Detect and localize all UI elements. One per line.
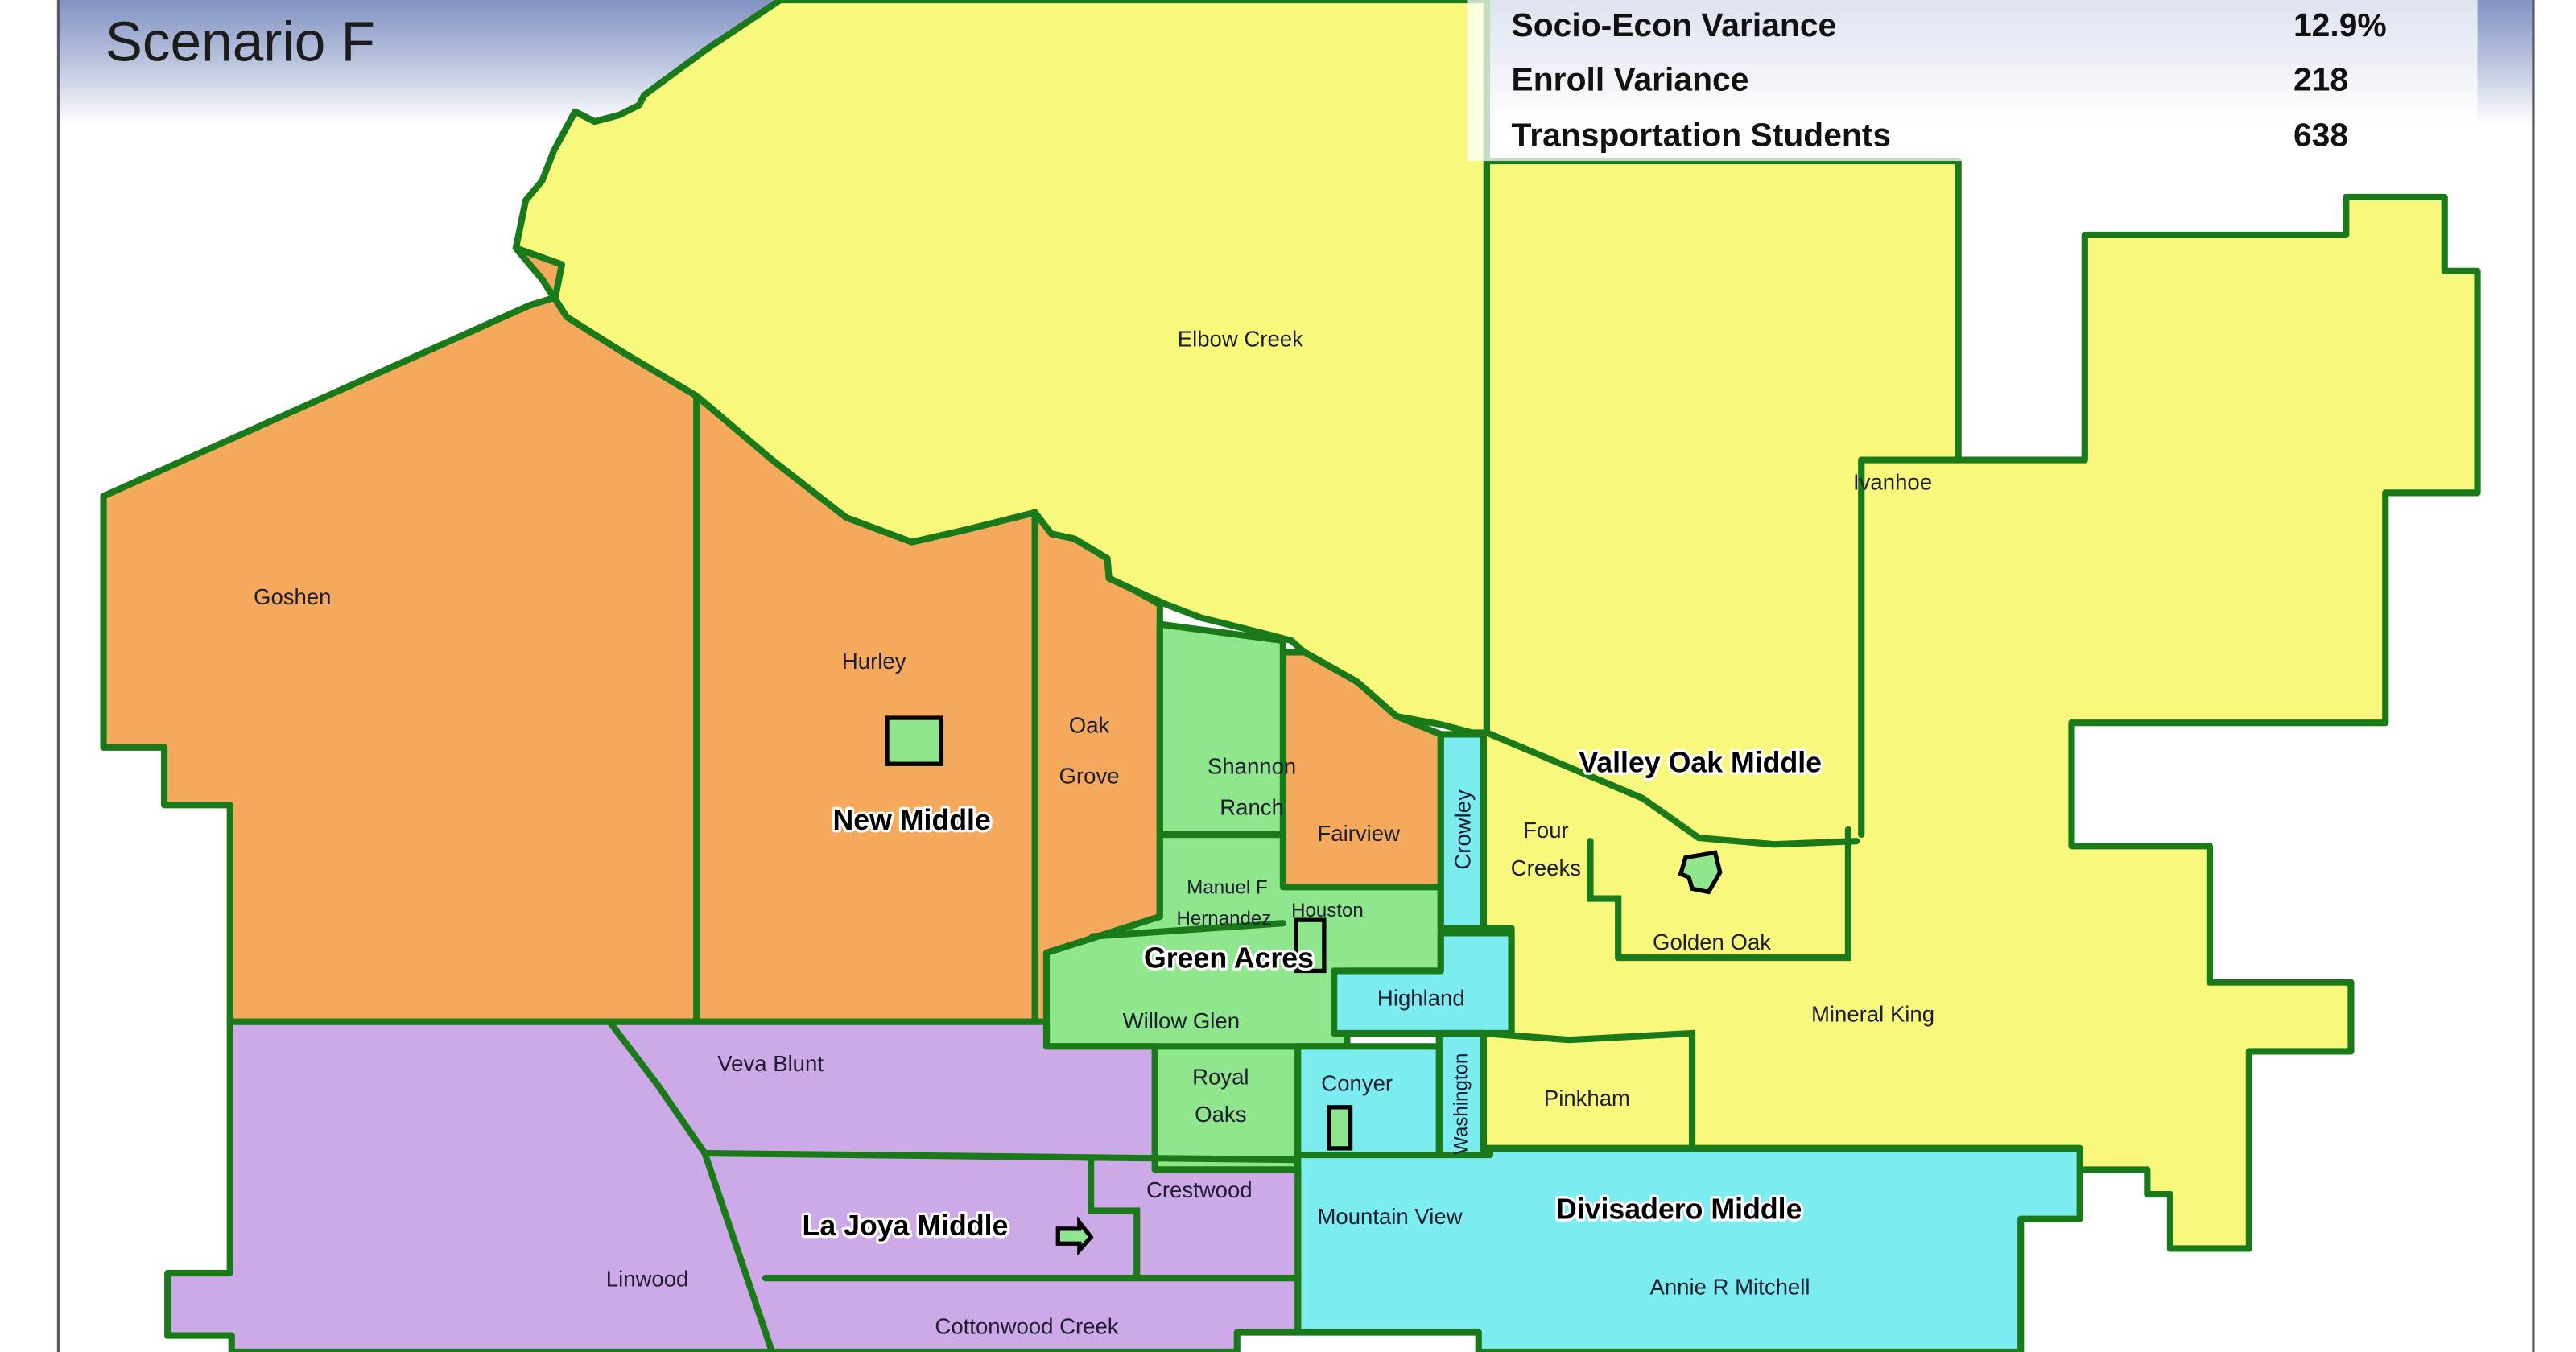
- area-label-hernandez-1: Manuel F: [1187, 876, 1267, 898]
- area-label-hurley: Hurley: [842, 649, 906, 674]
- area-label-elbow-creek: Elbow Creek: [1178, 327, 1303, 352]
- area-label-linwood: Linwood: [606, 1266, 689, 1291]
- stat-value-transportation-students: 638: [2293, 117, 2348, 154]
- area-label-veva-blunt: Veva Blunt: [717, 1051, 824, 1076]
- area-label-shannon-ranch-1: Shannon: [1207, 753, 1296, 778]
- stat-value-socio-econ-variance: 12.9%: [2293, 6, 2387, 43]
- zone-label-divisadero-middle: Divisadero Middle: [1556, 1193, 1802, 1226]
- area-label-four-creeks-1: Four: [1523, 818, 1569, 843]
- area-label-royal-oaks-1: Royal: [1192, 1064, 1249, 1089]
- area-divisadero-polygon: [1298, 1148, 2079, 1352]
- area-label-conyer: Conyer: [1321, 1070, 1393, 1095]
- new-middle-school-site-icon: [887, 718, 941, 764]
- stat-label-socio-econ-variance: Socio-Econ Variance: [1512, 6, 1837, 43]
- area-label-houston: Houston: [1291, 900, 1364, 921]
- area-label-oak-grove-1: Oak: [1069, 712, 1110, 737]
- scenario-map-page: Goshen Hurley Elbow Creek Ivanhoe Oak Gr…: [0, 0, 2576, 1352]
- zone-label-la-joya-middle: La Joya Middle: [803, 1210, 1009, 1242]
- area-label-willow-glen: Willow Glen: [1123, 1008, 1240, 1033]
- area-label-ivanhoe: Ivanhoe: [1853, 469, 1932, 494]
- area-label-fairview: Fairview: [1317, 821, 1400, 846]
- district-map: Goshen Hurley Elbow Creek Ivanhoe Oak Gr…: [0, 0, 2576, 1352]
- area-label-mountain-view: Mountain View: [1317, 1204, 1462, 1229]
- area-label-highland: Highland: [1377, 985, 1465, 1010]
- page-title: Scenario F: [105, 10, 375, 73]
- area-label-goshen: Goshen: [254, 584, 331, 609]
- area-label-oak-grove-2: Grove: [1059, 764, 1120, 789]
- area-label-mineral-king: Mineral King: [1811, 1002, 1934, 1027]
- conyer-school-icon: [1329, 1107, 1351, 1148]
- area-label-cottonwood-creek: Cottonwood Creek: [935, 1314, 1118, 1339]
- area-label-washington: Washington: [1450, 1053, 1472, 1155]
- area-label-shannon-ranch-2: Ranch: [1220, 794, 1284, 819]
- area-label-hernandez-2: Hernandez: [1177, 908, 1272, 929]
- stat-value-enroll-variance: 218: [2293, 60, 2348, 97]
- area-label-annie-r-mitchell: Annie R Mitchell: [1649, 1275, 1810, 1300]
- zone-label-green-acres: Green Acres: [1144, 942, 1314, 974]
- area-label-pinkham: Pinkham: [1544, 1086, 1630, 1111]
- stat-label-transportation-students: Transportation Students: [1512, 117, 1892, 154]
- area-conyer-polygon: [1298, 1046, 1439, 1155]
- zone-label-valley-oak-middle: Valley Oak Middle: [1579, 746, 1822, 778]
- area-label-golden-oak: Golden Oak: [1653, 929, 1771, 954]
- stat-label-enroll-variance: Enroll Variance: [1512, 60, 1749, 97]
- area-label-four-creeks-2: Creeks: [1511, 855, 1581, 880]
- area-label-crestwood: Crestwood: [1146, 1177, 1253, 1202]
- zone-label-new-middle: New Middle: [832, 804, 990, 836]
- area-label-crowley: Crowley: [1451, 789, 1476, 870]
- area-label-royal-oaks-2: Oaks: [1195, 1102, 1246, 1127]
